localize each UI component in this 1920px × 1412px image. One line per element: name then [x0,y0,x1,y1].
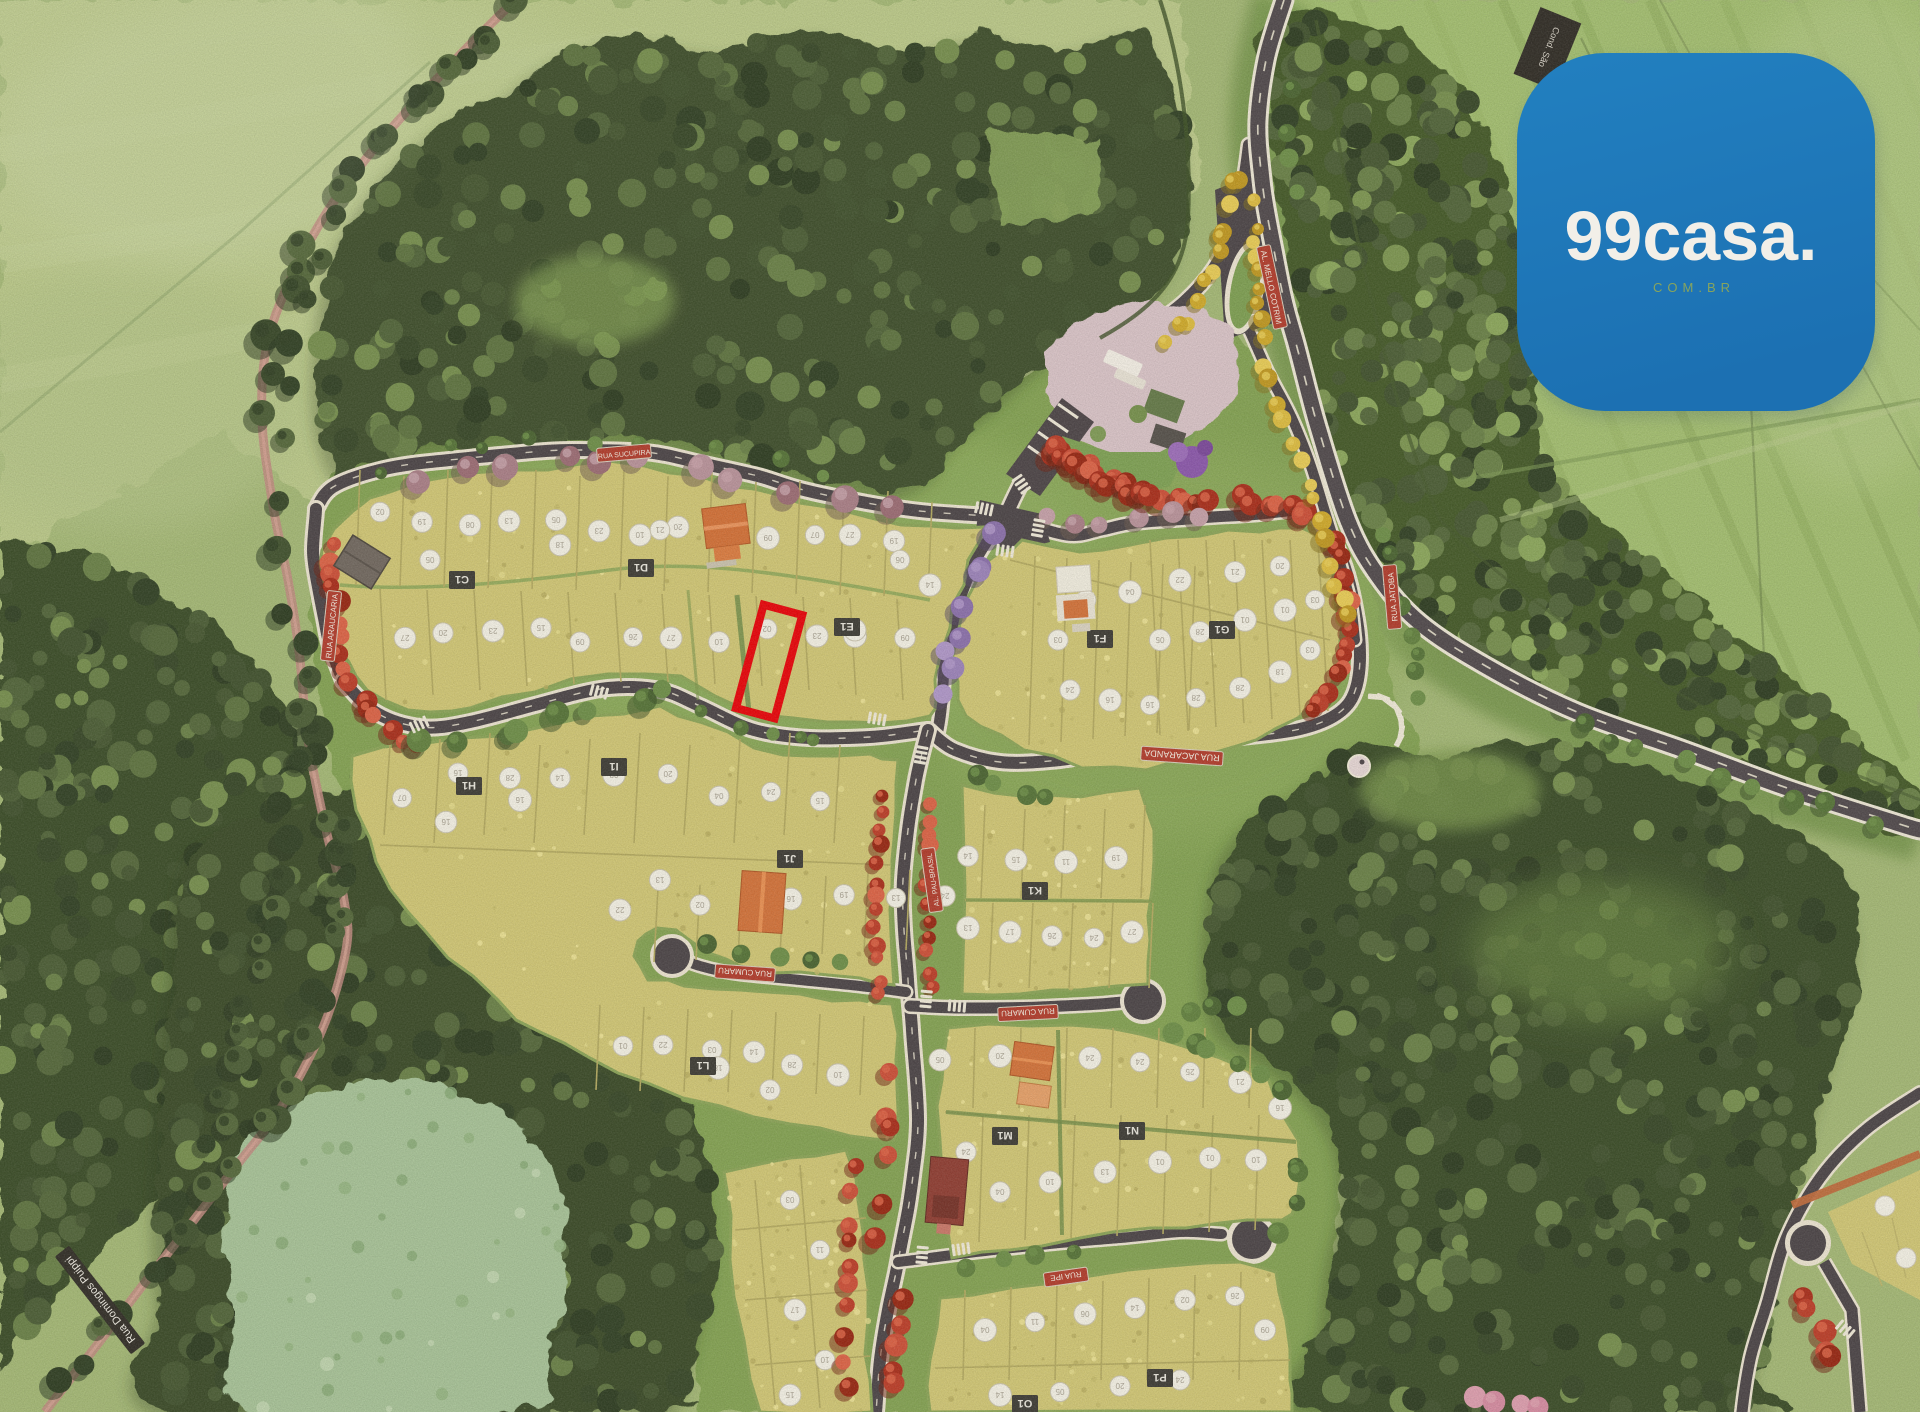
svg-text:COM.BR: COM.BR [1653,280,1735,295]
svg-text:99casa.: 99casa. [1564,197,1817,275]
